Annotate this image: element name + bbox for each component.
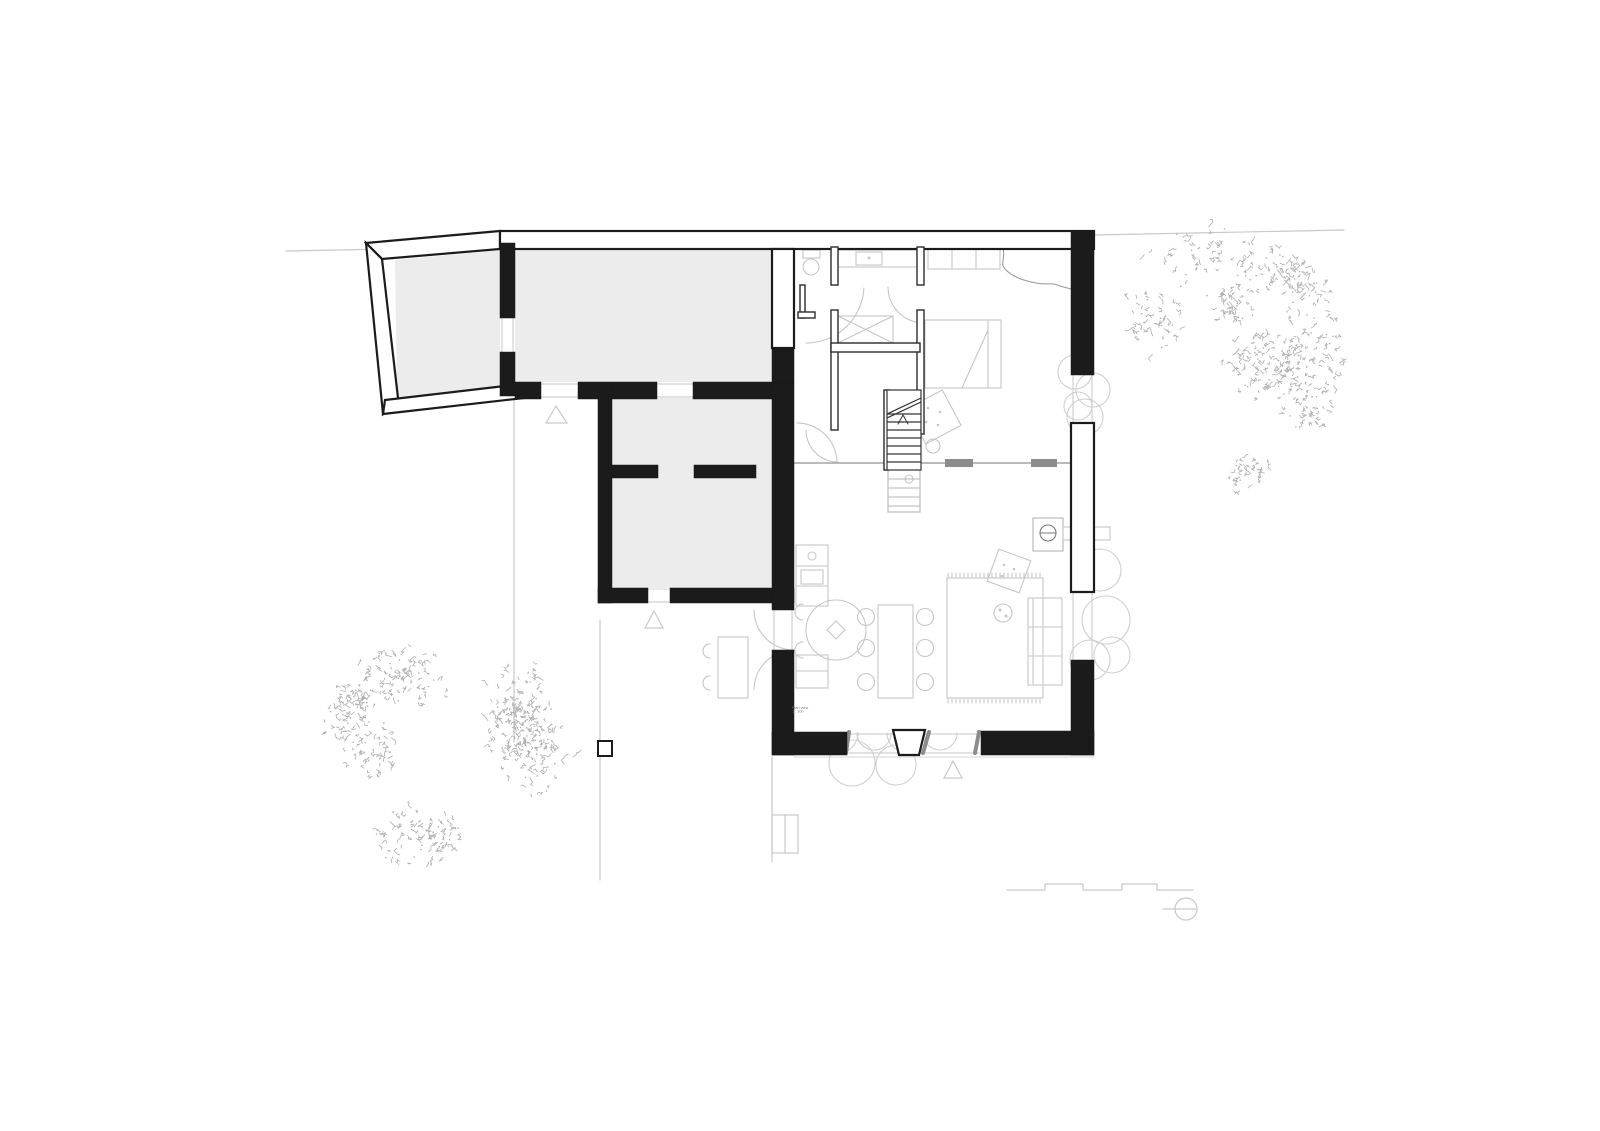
furniture-dot <box>1005 615 1008 618</box>
walls-solid-rect <box>1071 231 1094 375</box>
furniture-dot <box>1003 564 1006 567</box>
furniture-rect <box>803 250 820 258</box>
site-lines-poly <box>645 611 663 628</box>
room-fills-poly <box>395 250 500 398</box>
furniture-circle <box>1094 637 1130 673</box>
walls-hollow-poly <box>893 730 925 755</box>
stairs <box>887 390 921 470</box>
furniture-circle <box>994 604 1012 622</box>
site-lines-rect <box>598 741 612 756</box>
furniture-circle <box>858 674 875 691</box>
walls-solid-rect <box>612 465 658 478</box>
furniture-circle <box>803 259 819 275</box>
furniture-treads <box>889 479 919 506</box>
furniture-circle <box>806 600 866 660</box>
furniture-dot <box>939 411 942 414</box>
furniture-circle <box>1082 596 1130 644</box>
furniture-dot <box>999 609 1002 612</box>
furniture-circle <box>917 640 934 657</box>
furniture-rect <box>925 320 1001 388</box>
furniture-circle <box>858 609 875 626</box>
room-annotation: Plan view 1 : 100 <box>792 706 808 714</box>
furniture-arc <box>703 676 710 690</box>
room-fills <box>395 249 774 590</box>
furniture-line <box>962 330 988 388</box>
walls-solid-rect <box>693 382 772 399</box>
furniture-dot <box>927 407 930 410</box>
furniture-rect <box>947 578 1043 698</box>
walls-solid-rect <box>772 383 794 610</box>
walls-solid-rect <box>578 382 657 399</box>
partitions-rect <box>917 247 924 285</box>
furniture-rect <box>801 570 823 584</box>
furniture-arc <box>703 644 710 658</box>
furniture-fringe <box>948 699 1040 703</box>
floor-plan-drawing <box>0 0 1600 1131</box>
walls-solid-rect <box>772 732 847 755</box>
site-lines-poly <box>944 761 962 778</box>
walls-solid-rect <box>694 465 756 478</box>
trees-tree <box>1124 219 1346 495</box>
furniture-dot <box>925 421 928 424</box>
walls-solid-rect <box>1071 660 1094 755</box>
furniture-dot <box>868 257 871 260</box>
thresholds-line <box>975 732 979 753</box>
partitions-rect <box>831 343 920 352</box>
furniture-rect <box>987 549 1031 593</box>
walls-solid-rect <box>515 382 541 399</box>
walls-hollow-poly <box>366 243 398 414</box>
partitions-rect <box>798 312 815 318</box>
walls-hollow-rect <box>500 231 1094 249</box>
walls-solid-rect <box>500 352 515 396</box>
walls-hollow-rect <box>1071 423 1094 592</box>
partitions-rect <box>831 247 838 285</box>
trees-tree <box>322 645 581 867</box>
furniture-rect <box>718 637 748 698</box>
thresholds-rect <box>1031 459 1057 467</box>
room-fills-rect <box>610 398 774 590</box>
furniture-circle <box>808 552 816 560</box>
walls-solid-rect <box>500 243 515 318</box>
site-lines-poly <box>546 406 567 423</box>
walls-solid-rect <box>598 588 648 603</box>
furniture-circle <box>917 609 934 626</box>
site-lines-pline <box>1007 884 1193 890</box>
furniture-rect <box>928 249 1000 269</box>
furniture-dot <box>937 424 940 427</box>
furniture-dot <box>1013 568 1016 571</box>
furniture-rect <box>1094 527 1110 540</box>
furniture-rect <box>878 605 913 698</box>
thresholds <box>794 459 1071 753</box>
walls-solid-rect <box>598 383 612 603</box>
furniture-circle <box>926 439 940 453</box>
walls-hollow-rect <box>772 249 794 348</box>
floor-plan-page: Plan view 1 : 100 <box>0 0 1600 1131</box>
room-fills-rect <box>515 249 772 382</box>
furniture-dot <box>1001 575 1004 578</box>
furniture-circle <box>1076 373 1110 407</box>
walls-solid-rect <box>772 348 794 383</box>
partitions-rect <box>831 310 838 430</box>
furniture-poly <box>827 621 845 639</box>
furniture-rect <box>1033 518 1063 551</box>
thresholds-rect <box>945 459 973 467</box>
furniture-circle <box>917 674 934 691</box>
room-annotation-line2: 1 : 100 <box>792 710 808 714</box>
furniture-path <box>1003 248 1071 289</box>
